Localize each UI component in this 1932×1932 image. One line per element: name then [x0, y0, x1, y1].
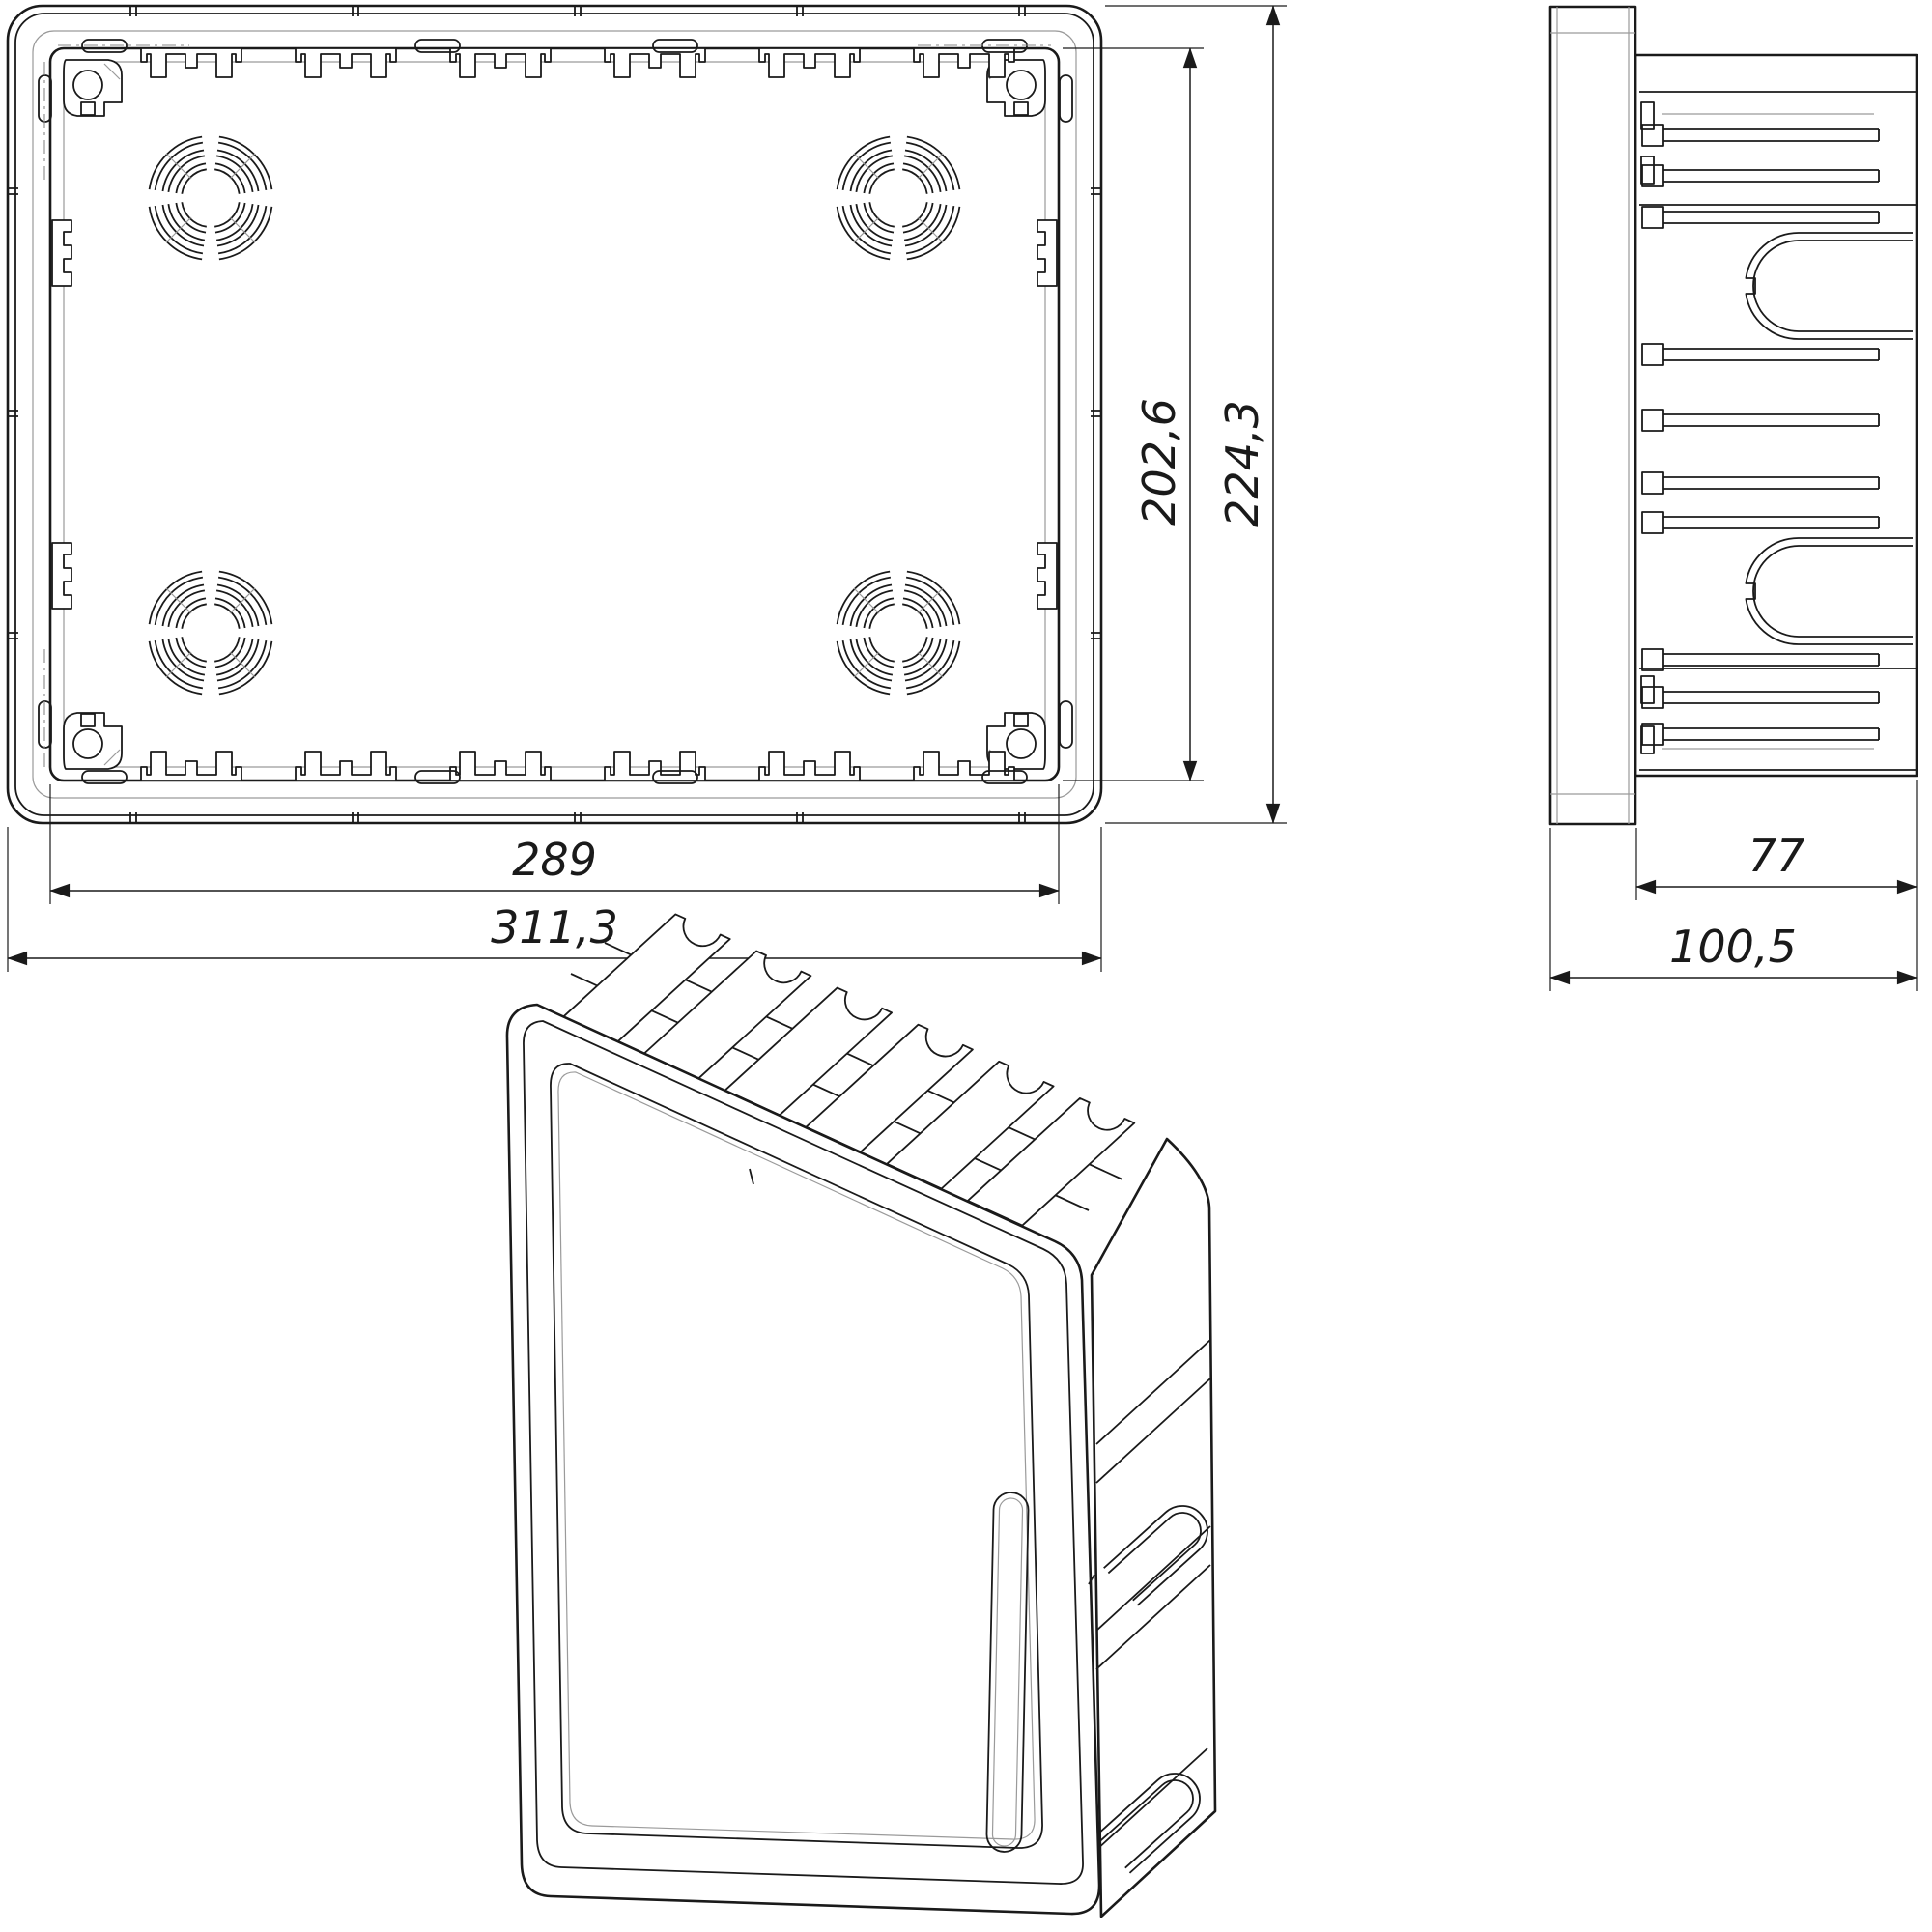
- dim-label-front-inner-width: 289: [512, 834, 597, 886]
- cable-knockout: [150, 572, 272, 695]
- side-view: [1550, 7, 1917, 824]
- cable-knockout: [150, 137, 272, 260]
- screw-boss: [64, 60, 122, 116]
- front-outer-outline: [8, 6, 1101, 823]
- technical-drawing: 202,6 224,3 289 311,3 77 100,5: [0, 0, 1932, 1932]
- dim-label-side-body-depth: 77: [1748, 830, 1805, 882]
- iso-door: [507, 1005, 1099, 1914]
- dim-label-front-inner-height: 202,6: [1133, 398, 1185, 526]
- drawing-sheet: 202,6 224,3 289 311,3 77 100,5: [0, 0, 1932, 1932]
- front-view: [7, 5, 1102, 824]
- dim-label-front-outer-height: 224,3: [1216, 400, 1268, 527]
- door-outline: [507, 1005, 1099, 1914]
- dimensions: 202,6 224,3 289 311,3 77 100,5: [8, 6, 1917, 991]
- dim-label-side-total-depth: 100,5: [1669, 921, 1797, 973]
- iso-body-side: [1092, 1139, 1218, 1917]
- isometric-view: [507, 914, 1218, 1917]
- side-flange-outline: [1550, 7, 1635, 824]
- dim-label-front-outer-width: 311,3: [491, 901, 618, 953]
- cable-knockout: [838, 572, 960, 695]
- cable-knockout: [838, 137, 960, 260]
- pipe-knockout: [1746, 538, 1913, 644]
- front-opening-outline: [50, 48, 1059, 781]
- screw-boss: [64, 713, 122, 769]
- pipe-knockout: [1746, 233, 1913, 339]
